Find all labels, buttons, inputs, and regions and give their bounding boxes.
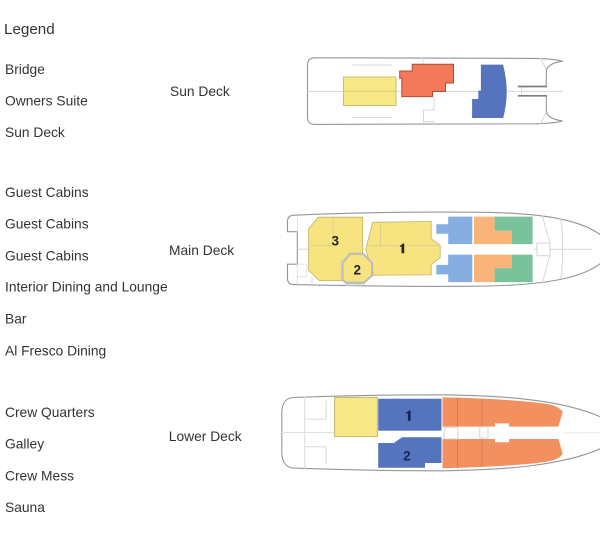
svg-text:Legend: Legend [4,21,55,38]
svg-text:Guest Cabins: Guest Cabins [5,217,89,232]
svg-text:2: 2 [353,262,361,277]
svg-text:Al Fresco Dining: Al Fresco Dining [5,343,106,358]
svg-text:Guest Cabins: Guest Cabins [5,185,89,200]
svg-text:Bar: Bar [5,311,27,326]
svg-text:Crew Quarters: Crew Quarters [5,405,95,420]
svg-text:3: 3 [332,234,340,249]
svg-text:Sauna: Sauna [5,500,45,515]
svg-text:Bridge: Bridge [5,62,45,77]
svg-text:Owners Suite: Owners Suite [5,94,88,109]
svg-text:Galley: Galley [5,437,44,452]
svg-text:Lower Deck: Lower Deck [169,429,242,444]
svg-text:Sun Deck: Sun Deck [170,84,230,99]
svg-text:Interior Dining and Lounge: Interior Dining and Lounge [5,280,168,295]
svg-text:Sun Deck: Sun Deck [5,125,65,140]
svg-text:Crew Mess: Crew Mess [5,468,74,483]
svg-text:Guest Cabins: Guest Cabins [5,248,89,263]
svg-text:2: 2 [403,448,411,463]
svg-text:Main Deck: Main Deck [169,243,234,258]
